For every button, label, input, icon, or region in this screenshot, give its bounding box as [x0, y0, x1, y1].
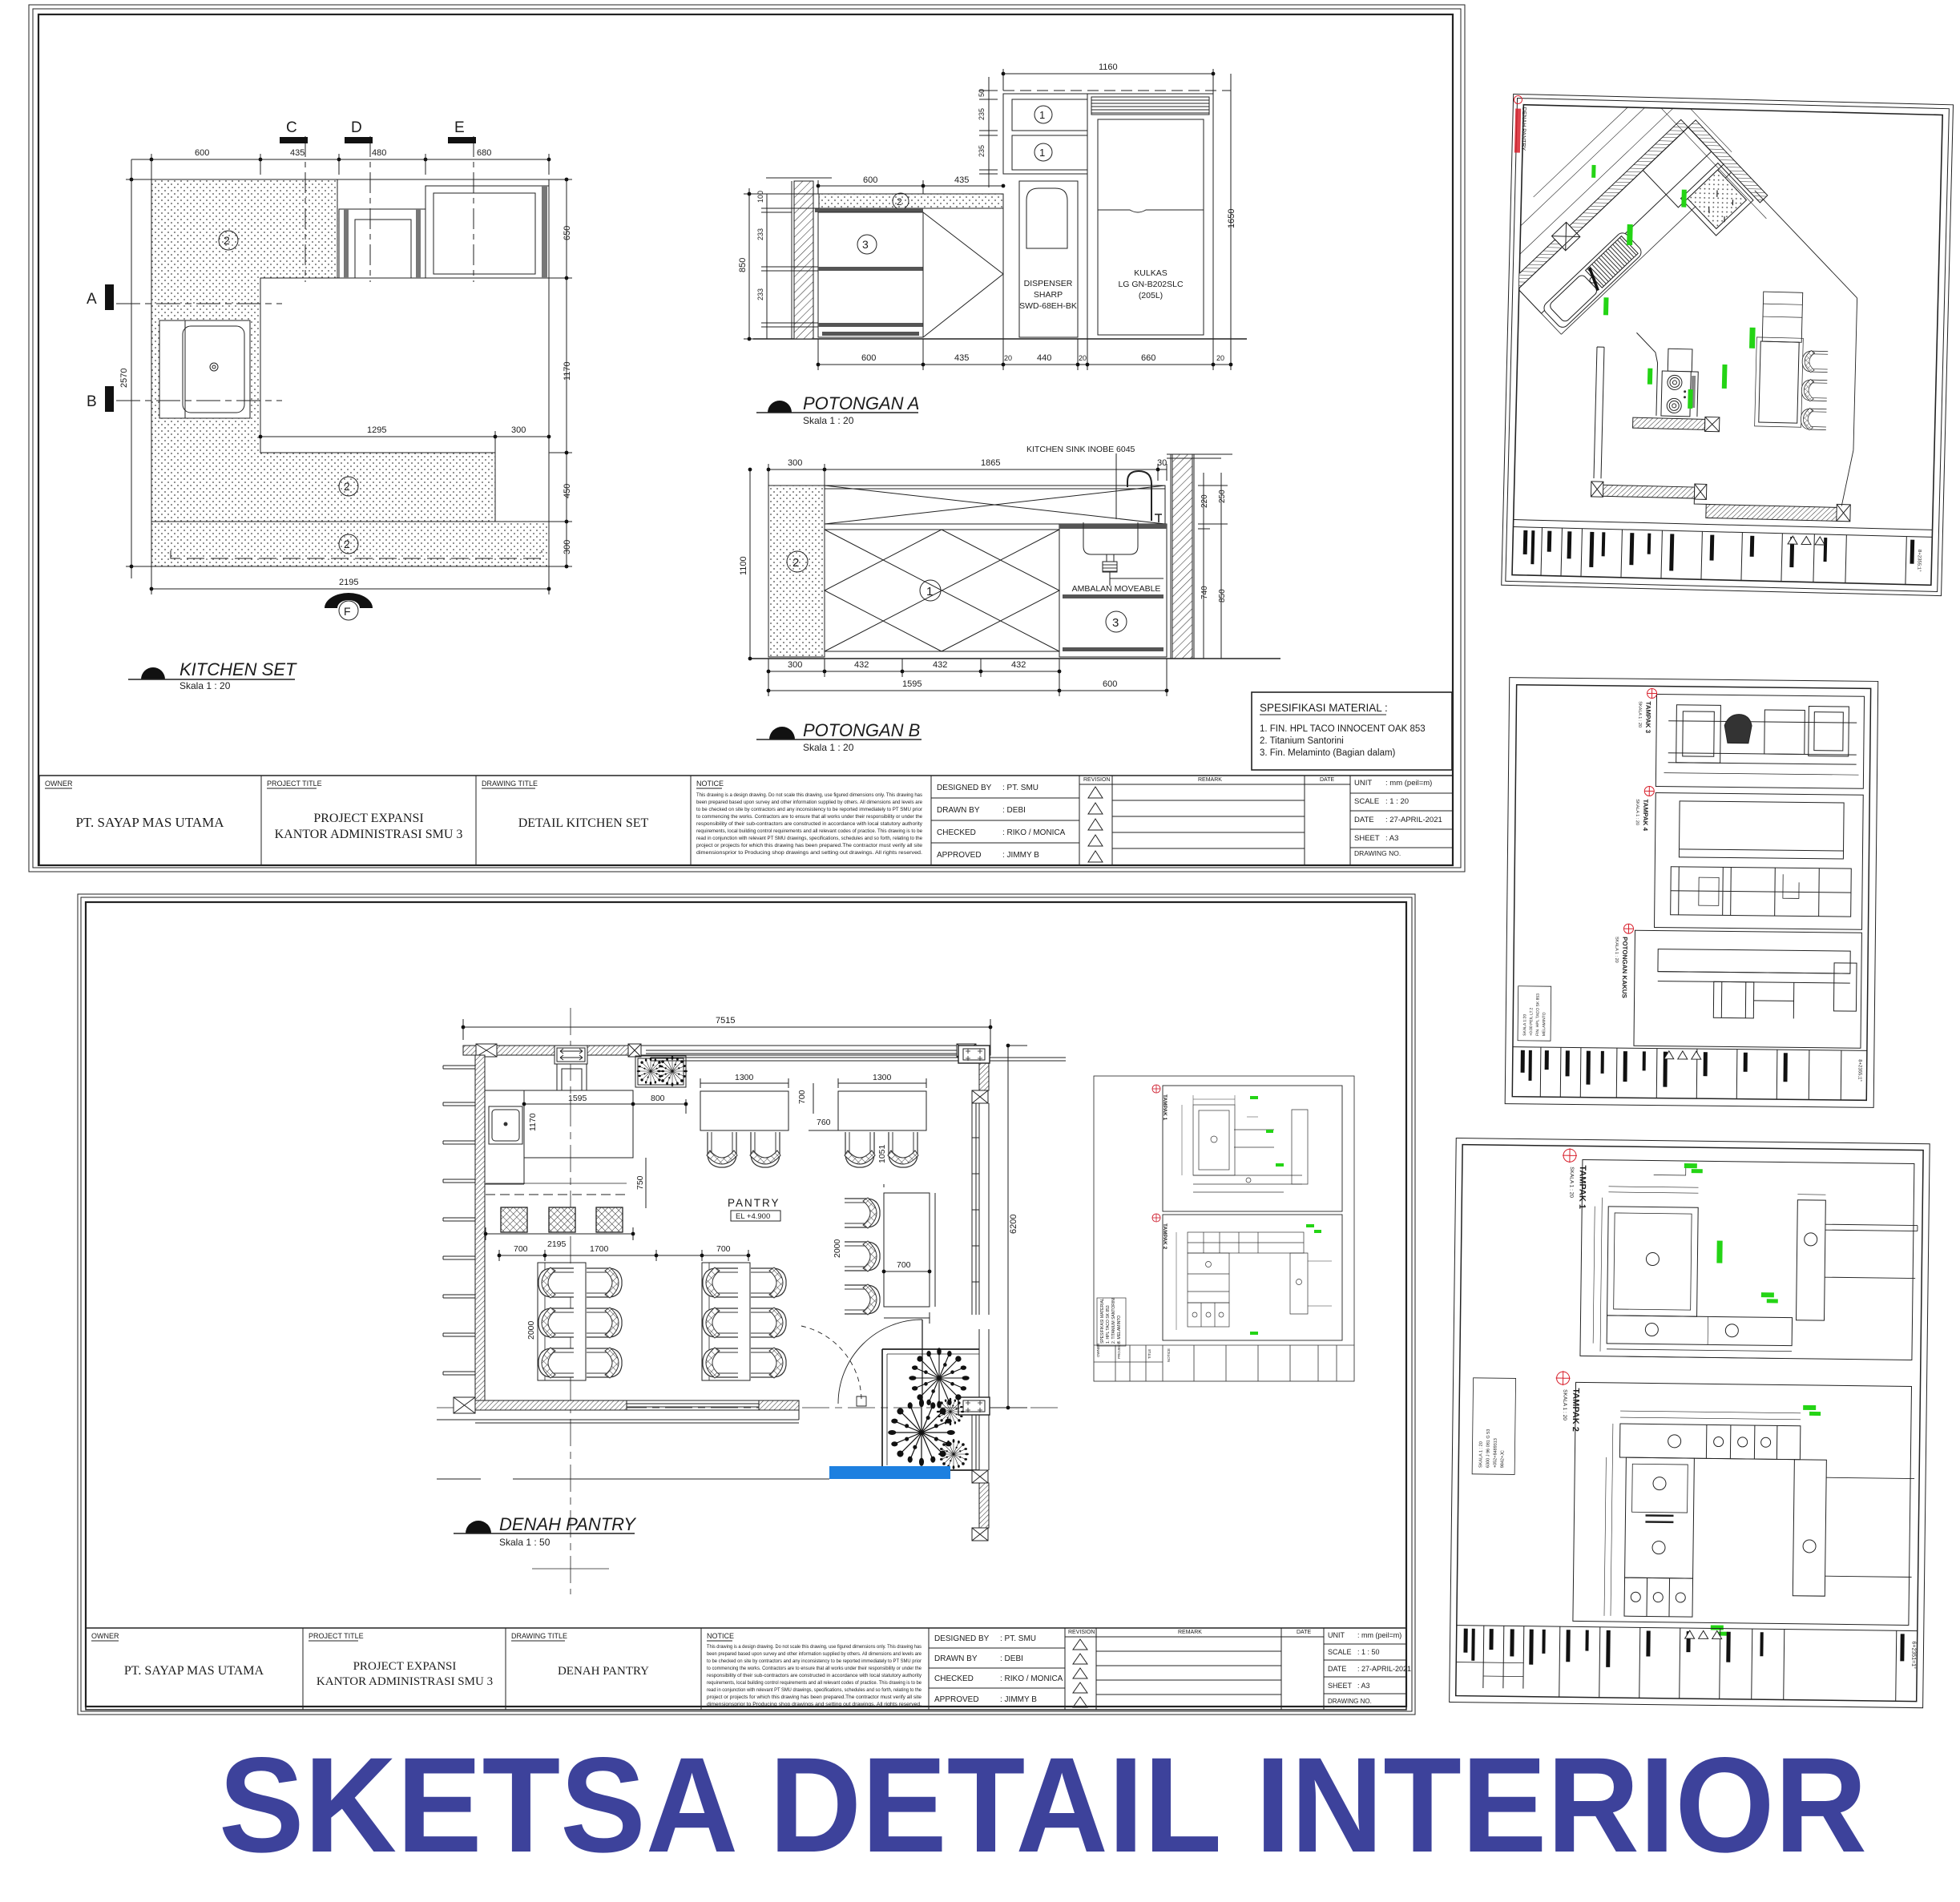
svg-text:DISPENSER: DISPENSER [1024, 279, 1073, 288]
svg-text:TAMPAK 1: TAMPAK 1 [1162, 1094, 1168, 1121]
svg-text:CHECKED: CHECKED [937, 828, 976, 837]
svg-text:(205L): (205L) [1139, 291, 1163, 300]
svg-text:2. Titanium Santorini: 2. Titanium Santorini [1260, 736, 1344, 746]
svg-text:600: 600 [861, 353, 876, 363]
svg-text:1170: 1170 [528, 1113, 538, 1131]
svg-text:3. MELAMINTO: 3. MELAMINTO [1117, 1316, 1122, 1344]
svg-text:D: D [351, 119, 362, 136]
svg-text:SPESIFIKASI MATERIAL: SPESIFIKASI MATERIAL [1100, 1298, 1105, 1344]
svg-text:PT. SAYAP MAS UTAMA: PT. SAYAP MAS UTAMA [75, 815, 224, 830]
svg-text:DESIGNED BY: DESIGNED BY [934, 1634, 990, 1643]
svg-text:dimensionsprior to Producing s: dimensionsprior to Producing shop drawin… [696, 850, 922, 856]
svg-text:850: 850 [738, 258, 748, 272]
svg-text:1170: 1170 [563, 361, 572, 381]
svg-text:2570: 2570 [119, 369, 129, 388]
svg-text:PROJECT EXPANSI: PROJECT EXPANSI [313, 812, 423, 825]
svg-text:TAMPAK 3: TAMPAK 3 [1644, 701, 1651, 733]
svg-text:AMBALAN MOVEABLE: AMBALAN MOVEABLE [1072, 584, 1161, 594]
svg-text:project or projects for which: project or projects for which this drawi… [696, 843, 922, 848]
svg-text:435: 435 [954, 353, 969, 363]
svg-text:PT. SAYAP MAS UTAMA: PT. SAYAP MAS UTAMA [124, 1664, 264, 1678]
svg-text:1: 1 [926, 585, 933, 598]
svg-text:SKALA 1 : 20: SKALA 1 : 20 [1562, 1389, 1567, 1420]
svg-text:: PT. SMU: : PT. SMU [1002, 784, 1038, 792]
svg-text:NOTICE: NOTICE [696, 780, 724, 788]
svg-text:432: 432 [1011, 660, 1026, 670]
svg-text:: 27-APRIL-2021: : 27-APRIL-2021 [1357, 1665, 1411, 1673]
svg-text:2: 2 [792, 556, 799, 570]
svg-text:DATE: DATE [1297, 1630, 1311, 1635]
svg-text:: mm (peil=m): : mm (peil=m) [1357, 1631, 1401, 1639]
svg-text:: mm (peil=m): : mm (peil=m) [1385, 779, 1432, 788]
svg-text:300: 300 [788, 660, 802, 670]
svg-text:REVISION: REVISION [1083, 777, 1110, 783]
svg-text:DETAIL KITCHEN SET: DETAIL KITCHEN SET [518, 816, 649, 830]
svg-text:435: 435 [290, 148, 304, 158]
svg-text:DRAWING TITLE: DRAWING TITLE [511, 1632, 567, 1640]
svg-text:responsibility of their sub-co: responsibility of their sub-contractors … [707, 1673, 922, 1678]
svg-text:20: 20 [1216, 354, 1224, 362]
svg-text:OWNER: OWNER [45, 780, 73, 788]
svg-text:DRAWING TITLE: DRAWING TITLE [482, 780, 538, 788]
svg-text:2: 2 [344, 480, 350, 493]
svg-text:: 1 : 50: : 1 : 50 [1357, 1648, 1380, 1656]
svg-text:600: 600 [863, 175, 877, 185]
svg-text:CHECKED: CHECKED [934, 1674, 974, 1683]
svg-text:1650: 1650 [1227, 209, 1236, 228]
svg-text:760: 760 [817, 1118, 831, 1127]
svg-text:KITCHEN SET: KITCHEN SET [179, 659, 297, 679]
svg-text:SCALE: SCALE [1328, 1648, 1352, 1656]
svg-text:1865: 1865 [981, 458, 1000, 468]
svg-text:600: 600 [1103, 679, 1117, 689]
svg-text:3: 3 [862, 238, 869, 251]
svg-text:1: 1 [1039, 147, 1045, 159]
svg-text:DESIGNED BY: DESIGNED BY [937, 784, 992, 792]
svg-text:SKALA 1 : 20: SKALA 1 : 20 [1614, 937, 1619, 963]
svg-text:SKALA 1 : 20: SKALA 1 : 20 [1478, 1441, 1483, 1468]
svg-text:: JIMMY B: : JIMMY B [1000, 1695, 1037, 1704]
svg-text:700: 700 [797, 1090, 807, 1104]
svg-text:Skala 1 : 50: Skala 1 : 50 [499, 1537, 550, 1548]
svg-text:50: 50 [978, 89, 986, 97]
svg-text:432: 432 [854, 660, 869, 670]
svg-text:to be checked on site by contr: to be checked on site by contractors and… [696, 807, 923, 812]
svg-text:6+2351=1°: 6+2351=1° [1910, 1641, 1917, 1669]
svg-text:C: C [286, 119, 297, 136]
svg-text:1. FIN. HPL TACO INNOCENT OAK: 1. FIN. HPL TACO INNOCENT OAK 853 [1260, 724, 1426, 734]
svg-text:220: 220 [1200, 494, 1209, 508]
svg-text:DRAWING NO.: DRAWING NO. [1354, 849, 1401, 857]
svg-text:LG GN-B202SLC: LG GN-B202SLC [1118, 280, 1184, 289]
svg-text:600: 600 [195, 148, 209, 158]
svg-text:20: 20 [1079, 354, 1087, 362]
svg-text:KANTOR ADMINISTRASI SMU 3: KANTOR ADMINISTRASI SMU 3 [317, 1675, 493, 1688]
svg-text:: A3: : A3 [1385, 834, 1398, 843]
svg-text:PANTRY: PANTRY [728, 1197, 780, 1209]
svg-text:SHARP: SHARP [1034, 290, 1063, 300]
svg-text:1595: 1595 [568, 1094, 587, 1103]
svg-text:DATE: DATE [1328, 1665, 1346, 1673]
svg-text:: A3: : A3 [1357, 1682, 1370, 1690]
svg-text:2: 2 [344, 538, 350, 550]
svg-text:TAMPAK 1: TAMPAK 1 [1577, 1165, 1587, 1209]
svg-text:2195: 2195 [547, 1239, 567, 1249]
svg-text:SKALA 1:20: SKALA 1:20 [1522, 1014, 1527, 1036]
svg-text:requirements, local building c: requirements, local building control req… [696, 828, 922, 834]
svg-text:750: 750 [635, 1175, 645, 1190]
svg-text:: DEBI: : DEBI [1000, 1654, 1023, 1663]
svg-text:8+2355;1°: 8+2355;1° [1916, 550, 1922, 572]
svg-text:UNIT: UNIT [1328, 1631, 1345, 1639]
svg-text:660: 660 [1141, 353, 1155, 363]
svg-text:been prepared based upon surve: been prepared based upon survey and othe… [696, 800, 922, 805]
svg-text:Skala 1 : 20: Skala 1 : 20 [803, 742, 854, 753]
svg-text:2000: 2000 [833, 1239, 842, 1258]
svg-text:APPROVED: APPROVED [934, 1695, 979, 1704]
svg-text:: 27-APRIL-2021: : 27-APRIL-2021 [1385, 816, 1442, 824]
svg-text:: DEBI: : DEBI [1002, 806, 1026, 815]
svg-text:6300 J 96 081 G 53: 6300 J 96 081 G 53 [1486, 1429, 1491, 1468]
svg-text:FIN. HPL TACO SK 853: FIN. HPL TACO SK 853 [1535, 993, 1541, 1036]
svg-text:SKALA 1 : 20: SKALA 1 : 20 [1637, 701, 1642, 727]
svg-text:7515: 7515 [716, 1016, 735, 1026]
svg-text:2000: 2000 [526, 1320, 536, 1340]
svg-text:650: 650 [563, 226, 572, 240]
svg-text:: RIKO / MONICA: : RIKO / MONICA [1002, 828, 1066, 837]
svg-text:2: 2 [897, 196, 902, 208]
svg-text:KULKAS: KULKAS [1134, 268, 1167, 278]
svg-text:1051: 1051 [877, 1144, 887, 1163]
svg-text:to commencing the works. Contr: to commencing the works. Contractors are… [696, 814, 922, 820]
svg-text:SPESIFIKASI MATERIAL :: SPESIFIKASI MATERIAL : [1260, 702, 1388, 714]
svg-text:to commencing the works. Contr: to commencing the works. Contractors are… [707, 1666, 922, 1671]
svg-text:to be checked on site by contr: to be checked on site by contractors and… [707, 1658, 922, 1664]
svg-text:been prepared based upon surve: been prepared based upon survey and othe… [707, 1651, 922, 1657]
svg-text:235: 235 [978, 108, 986, 120]
svg-text:1295: 1295 [367, 425, 386, 435]
svg-text:B: B [87, 393, 97, 410]
svg-text:1300: 1300 [735, 1073, 754, 1082]
svg-text:480: 480 [372, 148, 386, 158]
svg-text:9842+JC: 9842+JC [1500, 1450, 1505, 1468]
svg-text:read in conjunction with relev: read in conjunction with relevant PT SMU… [707, 1687, 922, 1693]
svg-text:TAMPAK 2: TAMPAK 2 [1571, 1388, 1581, 1432]
svg-text:SWD-68EH-BK: SWD-68EH-BK [1019, 301, 1077, 311]
svg-text:DATE: DATE [1354, 816, 1374, 824]
svg-text:2. TITANIUM SANTORINI: 2. TITANIUM SANTORINI [1111, 1298, 1116, 1344]
svg-text:300: 300 [563, 540, 572, 554]
svg-text:233: 233 [756, 228, 764, 240]
svg-text:SKALA 1 : 20: SKALA 1 : 20 [1568, 1167, 1574, 1198]
svg-text:: PT. SMU: : PT. SMU [1000, 1634, 1036, 1643]
svg-text:DRAWN BY: DRAWN BY [937, 806, 980, 815]
svg-text:1595: 1595 [902, 679, 922, 689]
svg-text:700: 700 [716, 1244, 731, 1254]
svg-text:+052+8489313: +052+8489313 [1493, 1438, 1498, 1468]
svg-text:300: 300 [788, 458, 802, 468]
svg-text:740: 740 [1200, 586, 1209, 599]
svg-text:1: 1 [1039, 109, 1045, 121]
svg-text:TITLE: TITLE [1147, 1349, 1151, 1359]
svg-text:POTONGAN KAKUS: POTONGAN KAKUS [1621, 937, 1629, 999]
svg-text:800: 800 [651, 1094, 665, 1103]
svg-text:A: A [87, 291, 97, 308]
svg-text:1300: 1300 [873, 1073, 892, 1082]
svg-text:30: 30 [1157, 458, 1167, 468]
svg-text:+0.00 PEIL LT.2: +0.00 PEIL LT.2 [1529, 1008, 1534, 1036]
svg-text:project or projects for which: project or projects for which this drawi… [707, 1694, 922, 1700]
svg-text:E: E [454, 119, 465, 136]
svg-text:3: 3 [1112, 616, 1119, 630]
svg-text:1160: 1160 [1099, 62, 1118, 72]
svg-text:250: 250 [1218, 490, 1227, 503]
svg-text:DENAH PANTRY: DENAH PANTRY [558, 1665, 649, 1678]
svg-text:POTONGAN B: POTONGAN B [803, 720, 920, 740]
svg-text:UNIT: UNIT [1354, 779, 1372, 788]
svg-text:Skala 1 : 20: Skala 1 : 20 [179, 680, 231, 691]
svg-text:DENAH PANTRY: DENAH PANTRY [1520, 107, 1526, 151]
svg-text:MELAMINTO: MELAMINTO [1542, 1012, 1547, 1036]
svg-text:850: 850 [1218, 589, 1227, 602]
svg-text:100: 100 [756, 191, 764, 203]
svg-text:This drawing is a design drawi: This drawing is a design drawing. Do not… [707, 1644, 922, 1650]
svg-text:2: 2 [224, 234, 230, 247]
svg-text:responsibility of their sub-co: responsibility of their sub-contractors … [696, 821, 923, 827]
svg-text:PROJECT EXPANSI: PROJECT EXPANSI [353, 1660, 457, 1673]
svg-text:POTONGAN A: POTONGAN A [803, 393, 919, 413]
svg-text:SHEET: SHEET [1354, 834, 1380, 843]
svg-text:F: F [344, 605, 351, 618]
svg-text:20: 20 [1004, 354, 1012, 362]
svg-text:NOTICE: NOTICE [1167, 1348, 1171, 1362]
svg-text:KITCHEN SINK INOBE 6045: KITCHEN SINK INOBE 6045 [1026, 445, 1135, 454]
svg-text:435: 435 [954, 175, 969, 185]
svg-text:REMARK: REMARK [1178, 1630, 1202, 1635]
svg-text:DENAH PANTRY: DENAH PANTRY [499, 1514, 636, 1534]
svg-text:TAMPAK 4: TAMPAK 4 [1642, 799, 1649, 831]
svg-text:OWNER: OWNER [91, 1632, 119, 1640]
svg-text:700: 700 [897, 1260, 911, 1270]
svg-text:680: 680 [477, 148, 491, 158]
svg-text:2195: 2195 [339, 578, 358, 587]
svg-text:This drawing is a design drawi: This drawing is a design drawing. Do not… [696, 792, 923, 798]
svg-text:Skala 1 : 20: Skala 1 : 20 [803, 415, 854, 426]
svg-text:NOTICE: NOTICE [707, 1632, 734, 1640]
svg-text:SHEET: SHEET [1328, 1682, 1353, 1690]
svg-text:requirements, local building c: requirements, local building control req… [707, 1680, 922, 1686]
svg-text:300: 300 [511, 425, 526, 435]
svg-text:: RIKO / MONICA: : RIKO / MONICA [1000, 1674, 1063, 1683]
svg-text:1. HPL TACO SK 853: 1. HPL TACO SK 853 [1106, 1305, 1111, 1344]
svg-text:PROJECT: PROJECT [1117, 1342, 1121, 1359]
svg-text:REMARK: REMARK [1198, 777, 1222, 783]
svg-text:SKETSA DETAIL INTERIOR: SKETSA DETAIL INTERIOR [219, 1729, 1867, 1880]
svg-text:1700: 1700 [590, 1244, 609, 1254]
svg-text:440: 440 [1037, 353, 1051, 363]
svg-text:450: 450 [563, 484, 572, 498]
svg-text:REVISION: REVISION [1068, 1630, 1095, 1635]
svg-text:3. Fin. Melaminto (Bagian dala: 3. Fin. Melaminto (Bagian dalam) [1260, 748, 1396, 758]
svg-text:235: 235 [978, 145, 986, 157]
svg-text:DRAWING NO.: DRAWING NO. [1328, 1698, 1372, 1705]
svg-text:DATE: DATE [1320, 777, 1334, 783]
svg-text:8+2355;1°: 8+2355;1° [1857, 1059, 1861, 1082]
svg-text:700: 700 [514, 1244, 528, 1254]
svg-text:432: 432 [933, 660, 947, 670]
svg-text:SKALA 1 : 20: SKALA 1 : 20 [1635, 799, 1639, 825]
svg-text:KANTOR ADMINISTRASI SMU 3: KANTOR ADMINISTRASI SMU 3 [275, 828, 463, 841]
svg-text:TAMPAK 2: TAMPAK 2 [1162, 1223, 1168, 1250]
svg-text:: 1 : 20: : 1 : 20 [1385, 797, 1409, 806]
svg-text:: JIMMY B: : JIMMY B [1002, 851, 1039, 860]
svg-text:DRAWN BY: DRAWN BY [934, 1654, 978, 1663]
svg-text:233: 233 [756, 288, 764, 300]
svg-text:1100: 1100 [739, 556, 748, 575]
svg-text:PROJECT TITLE: PROJECT TITLE [309, 1632, 364, 1640]
svg-text:read in conjunction with relev: read in conjunction with relevant PT SMU… [696, 836, 922, 841]
svg-text:PROJECT TITLE: PROJECT TITLE [267, 780, 322, 788]
svg-text:OWNER: OWNER [1096, 1343, 1100, 1357]
svg-text:APPROVED: APPROVED [937, 851, 982, 860]
svg-text:EL +4.900: EL +4.900 [736, 1212, 770, 1221]
svg-text:dimensionsprior to Producing s: dimensionsprior to Producing shop drawin… [707, 1702, 922, 1707]
svg-text:6200: 6200 [1009, 1215, 1018, 1234]
svg-text:SCALE: SCALE [1354, 797, 1379, 806]
